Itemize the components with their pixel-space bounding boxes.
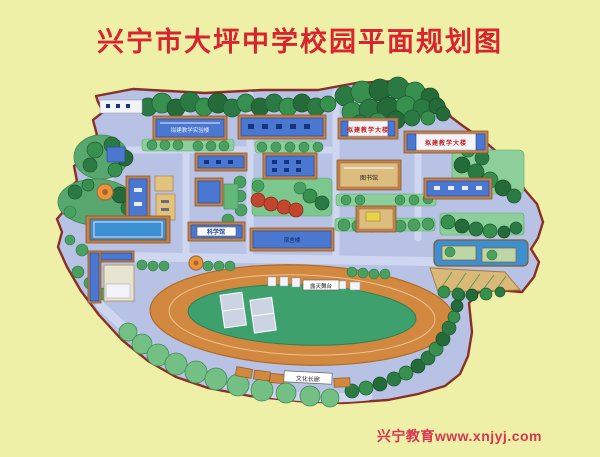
pool — [86, 216, 170, 243]
planned-teaching-building-1: 拟建教学大楼 — [338, 118, 398, 139]
gatehouse-building — [100, 100, 142, 113]
library-building: 图书馆 — [337, 160, 401, 190]
planned-building-2-label: 拟建教学大楼 — [425, 139, 467, 147]
classroom-building — [238, 115, 326, 139]
science-hall-label: 科学馆 — [207, 228, 225, 236]
dormitory-building: 宿舍楼 — [250, 228, 334, 251]
science-hall-building: 科学馆 — [188, 222, 245, 241]
open-air-stage-label: 露天舞台 — [310, 282, 333, 290]
poster-page: 兴宁市大坪中学校园平面规划图 — [0, 0, 600, 457]
green-building — [224, 184, 238, 209]
u-building — [88, 251, 134, 303]
annex-building-1 — [195, 153, 247, 171]
north-dorm-building — [424, 178, 492, 199]
library-label: 图书馆 — [360, 174, 378, 182]
open-air-stage: 露天舞台 — [303, 280, 339, 290]
pond — [434, 240, 528, 266]
annex-building-2 — [263, 153, 317, 179]
tan-building-center — [356, 206, 396, 232]
mid-blue-building — [195, 178, 223, 206]
lab-building-label: 拟建教学实验楼 — [171, 126, 210, 134]
dormitory-label: 宿舍楼 — [284, 236, 301, 244]
campus-map: 拟建教学实验楼 拟建教学大楼 拟建教学大楼 — [0, 0, 600, 457]
planned-building-1-label: 拟建教学大楼 — [347, 126, 389, 134]
footer-credit: 兴宁教育www.xnjyj.com — [377, 426, 542, 446]
yellow-buildings — [155, 176, 175, 220]
small-blue-building — [107, 147, 125, 162]
planned-teaching-building-2: 拟建教学大楼 — [404, 131, 488, 153]
lab-building: 拟建教学实验楼 — [153, 116, 227, 140]
